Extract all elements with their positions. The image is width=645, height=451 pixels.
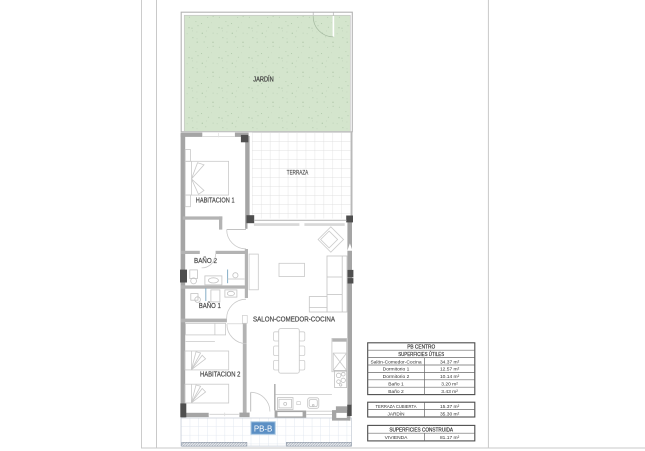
svg-text:35.30 m²: 35.30 m² [440, 411, 460, 417]
svg-text:SALON-COMEDOR-COCINA: SALON-COMEDOR-COCINA [253, 314, 336, 323]
svg-text:Dormitorio 1: Dormitorio 1 [383, 367, 410, 373]
svg-text:JARDÍN: JARDÍN [388, 410, 405, 416]
svg-text:TERRAZA: TERRAZA [287, 169, 309, 176]
svg-text:Baño 1: Baño 1 [388, 382, 404, 388]
svg-text:Baño 2: Baño 2 [388, 389, 404, 395]
svg-text:JARDÍN: JARDÍN [253, 75, 273, 84]
svg-text:Salón-Comedor-Cocina: Salón-Comedor-Cocina [370, 359, 421, 365]
svg-text:3.20 m²: 3.20 m² [441, 382, 458, 388]
svg-text:10.14 m²: 10.14 m² [440, 374, 460, 380]
svg-text:12.57 m²: 12.57 m² [440, 367, 460, 373]
svg-text:TERRAZA CUBIERTA: TERRAZA CUBIERTA [376, 404, 418, 410]
svg-text:Dormitorio 2: Dormitorio 2 [383, 374, 410, 380]
svg-text:15.37 m²: 15.37 m² [440, 404, 460, 410]
svg-text:HABITACION 1: HABITACION 1 [196, 195, 235, 204]
svg-text:BAÑO 2: BAÑO 2 [194, 256, 217, 265]
svg-text:PB-B: PB-B [254, 424, 273, 434]
svg-text:34.37 m²: 34.37 m² [440, 359, 460, 365]
svg-text:SUPERFICIES ÚTILES: SUPERFICIES ÚTILES [398, 351, 444, 358]
svg-text:PB CENTRO: PB CENTRO [407, 345, 435, 351]
svg-text:3.43 m²: 3.43 m² [441, 389, 458, 395]
svg-text:81.17 m²: 81.17 m² [440, 435, 460, 441]
svg-text:SUPERFICIES CONSTRUIDA: SUPERFICIES CONSTRUIDA [389, 427, 453, 433]
svg-text:VIVIENDA: VIVIENDA [385, 435, 409, 441]
svg-text:HABITACION 2: HABITACION 2 [200, 370, 241, 379]
